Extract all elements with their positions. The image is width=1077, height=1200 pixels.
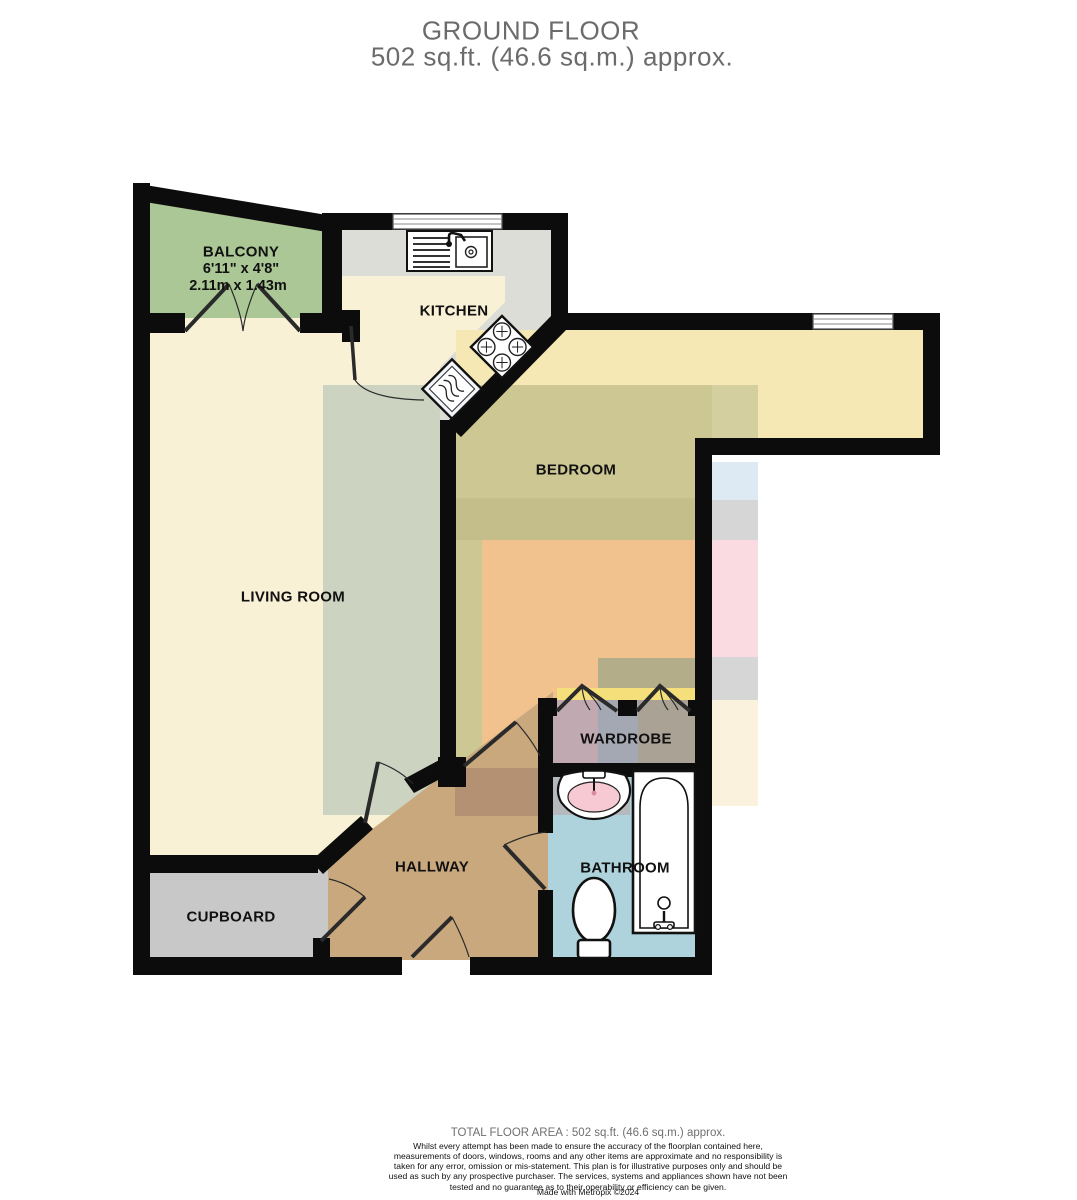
spill-blue-strip [712, 462, 758, 500]
spill-gray-strip-upper [712, 500, 758, 540]
label-bathroom: BATHROOM [580, 860, 670, 877]
wardrobe-post-left [538, 698, 557, 716]
wardrobe-post-right [688, 700, 705, 716]
label-wardrobe: WARDROBE [580, 731, 672, 748]
page-subtitle: 502 sq.ft. (46.6 sq.m.) approx. [371, 42, 733, 73]
left-wall [133, 313, 150, 975]
bedroom-right-wall [923, 313, 940, 455]
label-balcony-dims-metric: 2.11m x 1.43m [189, 278, 287, 294]
label-kitchen: KITCHEN [420, 303, 489, 320]
living-room-bottom-wall [133, 855, 318, 873]
wardrobe-post-mid [618, 700, 637, 716]
floorplan-page: GROUND FLOOR 502 sq.ft. (46.6 sq.m.) app… [0, 0, 1077, 1200]
label-bedroom: BEDROOM [536, 462, 616, 479]
label-balcony: BALCONY [203, 244, 279, 261]
bedroom-olive-left-strip [456, 540, 482, 772]
kitchen-window [393, 214, 502, 229]
balcony-left-wall [133, 183, 150, 333]
living-bedroom-wall [440, 420, 456, 765]
bottom-wall-left [133, 957, 402, 975]
label-balcony-dims-imperial: 6'11" x 4'8" [203, 261, 279, 277]
floorplan-drawing [0, 0, 1077, 1200]
kitchen-right-wall [551, 213, 568, 330]
label-cupboard: CUPBOARD [186, 909, 275, 926]
credit-text: Made with Metropix ©2024 [537, 1187, 639, 1197]
bedroom-window [813, 314, 893, 329]
bottom-wall-right [470, 957, 712, 975]
toilet [573, 878, 615, 958]
kitchen-sink [407, 231, 492, 271]
label-hallway: HALLWAY [395, 859, 469, 876]
balcony-door-post-right [300, 313, 342, 333]
spill-gray-strip-lower [712, 657, 758, 700]
bedroom-arm-bottom-wall [695, 438, 940, 455]
disclaimer-text: Whilst every attempt has been made to en… [386, 1141, 790, 1192]
spill-olive-strip [712, 385, 758, 438]
cupboard-post [313, 938, 330, 975]
spill-cream-strip [712, 700, 758, 806]
spill-pink-strip [712, 540, 758, 657]
hallway-dark-patch [455, 768, 545, 816]
bathroom-left-lower-wall [538, 890, 553, 975]
label-living-room: LIVING ROOM [241, 589, 345, 606]
bedroom-olive-band [456, 498, 712, 540]
bathtub [633, 771, 695, 933]
total-floor-area: TOTAL FLOOR AREA : 502 sq.ft. (46.6 sq.m… [451, 1127, 726, 1139]
